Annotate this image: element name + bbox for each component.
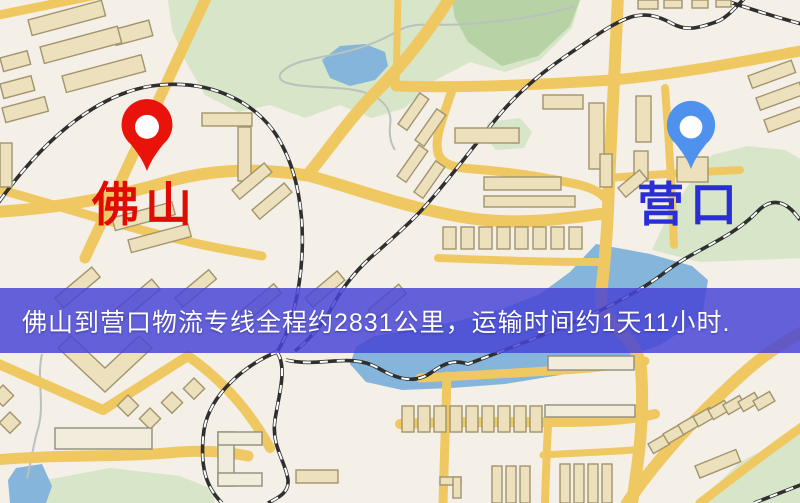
route-info-text: 佛山到营口物流专线全程约2831公里，运输时间约1天11小时. (22, 303, 730, 339)
map-image: 佛山 营口 (0, 0, 800, 503)
destination-city-label: 营口 (637, 180, 743, 232)
origin-city-label: 佛山 (91, 180, 198, 232)
map-screenshot: 佛山 营口 佛山到营口物流专线全程约2831公里，运输时间约1天11小时. (0, 0, 800, 503)
route-info-banner: 佛山到营口物流专线全程约2831公里，运输时间约1天11小时. (0, 288, 800, 353)
